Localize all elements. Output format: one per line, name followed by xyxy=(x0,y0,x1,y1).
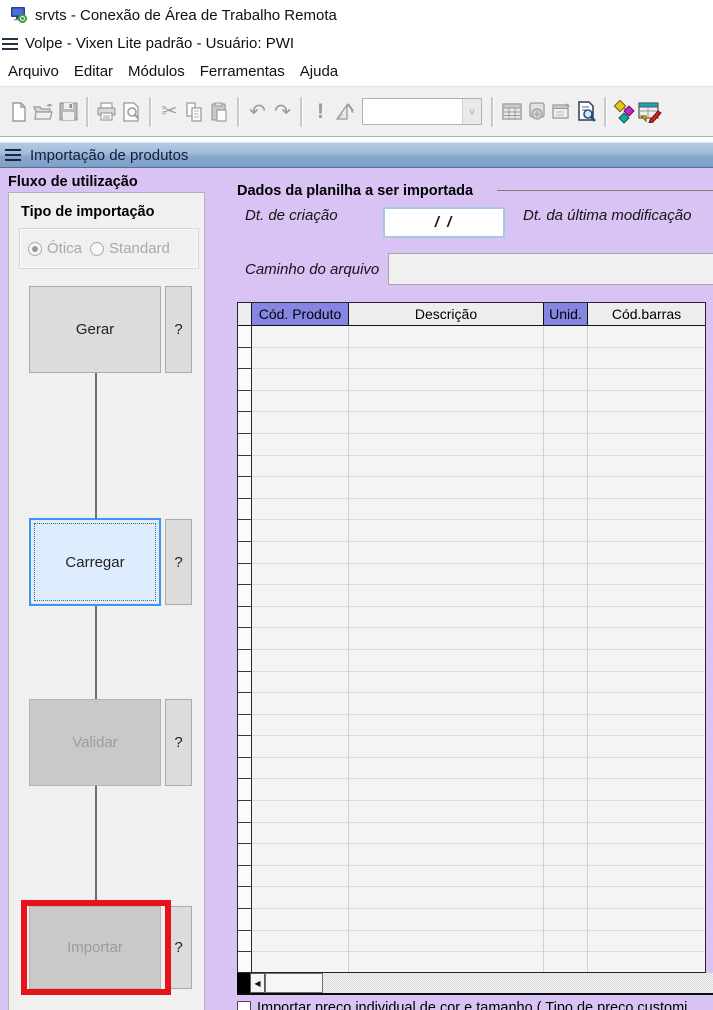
cell-unid[interactable] xyxy=(544,758,588,780)
cell-descricao[interactable] xyxy=(349,628,544,650)
table-row[interactable] xyxy=(238,564,705,586)
cell-descricao[interactable] xyxy=(349,369,544,391)
row-selector-cell[interactable] xyxy=(238,693,252,715)
import-price-checkbox[interactable] xyxy=(237,1001,251,1010)
cell-cod-barras[interactable] xyxy=(588,326,705,348)
print-icon[interactable] xyxy=(94,99,119,125)
paste-icon[interactable] xyxy=(207,99,232,125)
file-path-label: Caminho do arquivo xyxy=(245,261,379,278)
execute-icon[interactable]: ! xyxy=(308,99,333,125)
table-row[interactable] xyxy=(238,520,705,542)
cell-descricao[interactable] xyxy=(349,434,544,456)
cell-cod-produto[interactable] xyxy=(252,499,349,521)
table-row[interactable] xyxy=(238,823,705,845)
cell-descricao[interactable] xyxy=(349,844,544,866)
row-selector-cell[interactable] xyxy=(238,391,252,413)
cell-cod-barras[interactable] xyxy=(588,693,705,715)
grid-view-icon[interactable] xyxy=(499,99,524,125)
table-row[interactable] xyxy=(238,477,705,499)
cell-unid[interactable] xyxy=(544,844,588,866)
cell-cod-produto[interactable] xyxy=(252,801,349,823)
carregar-help-button[interactable]: ? xyxy=(165,519,192,605)
cell-cod-produto[interactable] xyxy=(252,844,349,866)
row-selector-cell[interactable] xyxy=(238,866,252,888)
cell-cod-barras[interactable] xyxy=(588,477,705,499)
cell-cod-produto[interactable] xyxy=(252,434,349,456)
table-body xyxy=(238,326,705,973)
table-row[interactable] xyxy=(238,650,705,672)
table-row[interactable] xyxy=(238,412,705,434)
cell-unid[interactable] xyxy=(544,369,588,391)
row-selector-cell[interactable] xyxy=(238,456,252,478)
radio-circle-icon xyxy=(28,242,42,256)
scrollbar-corner xyxy=(237,973,250,993)
row-selector-cell[interactable] xyxy=(238,758,252,780)
carregar-button[interactable]: Carregar xyxy=(29,518,161,606)
scroll-left-button[interactable]: ◀ xyxy=(250,973,265,993)
toolbar-combobox[interactable]: ∨ xyxy=(362,98,482,125)
cell-unid[interactable] xyxy=(544,326,588,348)
table-row[interactable] xyxy=(238,456,705,478)
cell-cod-barras[interactable] xyxy=(588,823,705,845)
table-row[interactable] xyxy=(238,434,705,456)
table-row[interactable] xyxy=(238,542,705,564)
cell-cod-barras[interactable] xyxy=(588,736,705,758)
cell-cod-produto[interactable] xyxy=(252,736,349,758)
cell-unid[interactable] xyxy=(544,672,588,694)
cell-unid[interactable] xyxy=(544,477,588,499)
row-selector-cell[interactable] xyxy=(238,477,252,499)
window-title: Importação de produtos xyxy=(30,147,188,164)
cell-unid[interactable] xyxy=(544,693,588,715)
remote-desktop-icon xyxy=(10,6,28,24)
row-selector-header xyxy=(238,303,252,325)
cell-descricao[interactable] xyxy=(349,779,544,801)
cell-cod-produto[interactable] xyxy=(252,348,349,370)
creation-date-label: Dt. de criação xyxy=(245,207,338,224)
cell-cod-produto[interactable] xyxy=(252,456,349,478)
table-row[interactable] xyxy=(238,715,705,737)
menu-ferramentas[interactable]: Ferramentas xyxy=(200,63,285,80)
menu-ajuda[interactable]: Ajuda xyxy=(300,63,338,80)
cell-descricao[interactable] xyxy=(349,887,544,909)
cell-unid[interactable] xyxy=(544,650,588,672)
cell-unid[interactable] xyxy=(544,801,588,823)
cell-cod-produto[interactable] xyxy=(252,520,349,542)
cell-cod-produto[interactable] xyxy=(252,477,349,499)
cell-descricao[interactable] xyxy=(349,952,544,973)
row-selector-cell[interactable] xyxy=(238,672,252,694)
cell-descricao[interactable] xyxy=(349,866,544,888)
sort-flow-icon[interactable] xyxy=(612,99,637,125)
cell-descricao[interactable] xyxy=(349,520,544,542)
cell-descricao[interactable] xyxy=(349,564,544,586)
row-selector-cell[interactable] xyxy=(238,348,252,370)
cell-cod-produto[interactable] xyxy=(252,931,349,953)
flow-connector xyxy=(95,373,97,520)
grid-edit-icon[interactable] xyxy=(637,99,662,125)
divider xyxy=(237,993,713,995)
design-ruler-icon[interactable] xyxy=(333,99,358,125)
row-selector-cell[interactable] xyxy=(238,369,252,391)
cell-descricao[interactable] xyxy=(349,499,544,521)
table-row[interactable] xyxy=(238,693,705,715)
cell-cod-barras[interactable] xyxy=(588,369,705,391)
toolbar-separator xyxy=(604,97,607,127)
radio-standard[interactable]: Standard xyxy=(90,240,170,257)
cell-cod-produto[interactable] xyxy=(252,779,349,801)
cell-unid[interactable] xyxy=(544,434,588,456)
row-selector-cell[interactable] xyxy=(238,542,252,564)
row-selector-cell[interactable] xyxy=(238,952,252,973)
redo-icon[interactable]: ↷ xyxy=(270,99,295,125)
gerar-help-button[interactable]: ? xyxy=(165,286,192,373)
row-selector-cell[interactable] xyxy=(238,931,252,953)
cell-cod-barras[interactable] xyxy=(588,499,705,521)
cell-unid[interactable] xyxy=(544,952,588,973)
cell-cod-barras[interactable] xyxy=(588,412,705,434)
table-row[interactable] xyxy=(238,585,705,607)
radio-otica[interactable]: Ótica xyxy=(28,240,82,257)
cell-unid[interactable] xyxy=(544,391,588,413)
cell-cod-produto[interactable] xyxy=(252,887,349,909)
cell-unid[interactable] xyxy=(544,736,588,758)
validar-help-button[interactable]: ? xyxy=(165,699,192,786)
calculator-icon[interactable] xyxy=(524,99,549,125)
table-row[interactable] xyxy=(238,909,705,931)
menubar: Arquivo Editar Módulos Ferramentas Ajuda xyxy=(0,57,713,86)
row-selector-cell[interactable] xyxy=(238,585,252,607)
cell-cod-produto[interactable] xyxy=(252,672,349,694)
import-price-row: Importar preço individual de cor e taman… xyxy=(237,998,713,1010)
table-row[interactable] xyxy=(238,348,705,370)
row-selector-cell[interactable] xyxy=(238,823,252,845)
table-row[interactable] xyxy=(238,887,705,909)
cell-cod-produto[interactable] xyxy=(252,412,349,434)
table-row[interactable] xyxy=(238,391,705,413)
undo-icon[interactable]: ↶ xyxy=(245,99,270,125)
cell-descricao[interactable] xyxy=(349,736,544,758)
row-selector-cell[interactable] xyxy=(238,779,252,801)
chevron-down-icon: ∨ xyxy=(462,99,481,124)
cell-cod-produto[interactable] xyxy=(252,542,349,564)
validar-button[interactable]: Validar xyxy=(29,699,161,786)
cell-cod-barras[interactable] xyxy=(588,866,705,888)
cell-cod-produto[interactable] xyxy=(252,715,349,737)
cell-cod-barras[interactable] xyxy=(588,607,705,629)
importar-help-button[interactable]: ? xyxy=(165,906,192,989)
menu-modulos[interactable]: Módulos xyxy=(128,63,185,80)
cell-cod-barras[interactable] xyxy=(588,650,705,672)
import-products-content: Fluxo de utilização Dados da planilha a … xyxy=(0,168,713,1010)
cell-descricao[interactable] xyxy=(349,542,544,564)
cell-cod-produto[interactable] xyxy=(252,391,349,413)
cell-cod-produto[interactable] xyxy=(252,585,349,607)
cell-cod-barras[interactable] xyxy=(588,715,705,737)
cell-unid[interactable] xyxy=(544,909,588,931)
cell-descricao[interactable] xyxy=(349,650,544,672)
cell-cod-barras[interactable] xyxy=(588,456,705,478)
horizontal-scrollbar[interactable]: ◀ xyxy=(237,973,713,993)
products-table: Cód. Produto Descrição Unid. Cód.barras xyxy=(237,302,706,973)
file-path-input[interactable] xyxy=(388,253,713,285)
table-row[interactable] xyxy=(238,672,705,694)
cell-cod-produto[interactable] xyxy=(252,326,349,348)
rdp-title-bar: srvts - Conexão de Área de Trabalho Remo… xyxy=(0,0,713,30)
row-selector-cell[interactable] xyxy=(238,520,252,542)
open-folder-icon[interactable] xyxy=(31,99,56,125)
cell-descricao[interactable] xyxy=(349,585,544,607)
cell-descricao[interactable] xyxy=(349,672,544,694)
cell-unid[interactable] xyxy=(544,866,588,888)
menu-arquivo[interactable]: Arquivo xyxy=(8,63,59,80)
table-row[interactable] xyxy=(238,628,705,650)
row-selector-cell[interactable] xyxy=(238,887,252,909)
cell-unid[interactable] xyxy=(544,520,588,542)
window-title-bar: Importação de produtos xyxy=(0,142,713,168)
row-selector-cell[interactable] xyxy=(238,607,252,629)
cell-unid[interactable] xyxy=(544,542,588,564)
row-selector-cell[interactable] xyxy=(238,909,252,931)
cell-unid[interactable] xyxy=(544,348,588,370)
menu-editar[interactable]: Editar xyxy=(74,63,113,80)
cell-unid[interactable] xyxy=(544,564,588,586)
cell-cod-produto[interactable] xyxy=(252,607,349,629)
cell-cod-barras[interactable] xyxy=(588,801,705,823)
cell-descricao[interactable] xyxy=(349,909,544,931)
remote-desktop-screen: srvts - Conexão de Área de Trabalho Remo… xyxy=(0,0,713,1010)
hamburger-icon[interactable] xyxy=(2,38,18,50)
row-selector-cell[interactable] xyxy=(238,650,252,672)
properties-icon[interactable] xyxy=(549,99,574,125)
toolbar-separator xyxy=(300,97,303,127)
save-icon[interactable] xyxy=(56,99,81,125)
cell-cod-barras[interactable] xyxy=(588,844,705,866)
flow-connector xyxy=(95,786,97,906)
cell-descricao[interactable] xyxy=(349,326,544,348)
hamburger-icon[interactable] xyxy=(5,149,21,161)
cell-cod-barras[interactable] xyxy=(588,564,705,586)
cell-cod-produto[interactable] xyxy=(252,952,349,973)
col-header-cod-barras[interactable]: Cód.barras xyxy=(588,303,705,325)
flow-panel: Tipo de importação Ótica Standard Gerar … xyxy=(8,192,205,1010)
row-selector-cell[interactable] xyxy=(238,628,252,650)
cell-cod-barras[interactable] xyxy=(588,520,705,542)
cell-unid[interactable] xyxy=(544,499,588,521)
row-selector-cell[interactable] xyxy=(238,326,252,348)
row-selector-cell[interactable] xyxy=(238,499,252,521)
row-selector-cell[interactable] xyxy=(238,434,252,456)
cell-descricao[interactable] xyxy=(349,801,544,823)
cell-cod-produto[interactable] xyxy=(252,650,349,672)
toolbar-separator xyxy=(237,97,240,127)
flow-group-caption: Fluxo de utilização xyxy=(8,174,138,190)
creation-date-input[interactable]: / / xyxy=(383,207,505,238)
cell-descricao[interactable] xyxy=(349,823,544,845)
cell-unid[interactable] xyxy=(544,887,588,909)
cell-cod-barras[interactable] xyxy=(588,391,705,413)
cell-unid[interactable] xyxy=(544,715,588,737)
group-caption-line xyxy=(497,190,713,191)
table-row[interactable] xyxy=(238,866,705,888)
cell-cod-barras[interactable] xyxy=(588,542,705,564)
cell-descricao[interactable] xyxy=(349,715,544,737)
row-selector-cell[interactable] xyxy=(238,736,252,758)
table-row[interactable] xyxy=(238,952,705,973)
copy-icon[interactable] xyxy=(182,99,207,125)
cell-cod-produto[interactable] xyxy=(252,564,349,586)
cell-cod-barras[interactable] xyxy=(588,348,705,370)
row-selector-cell[interactable] xyxy=(238,564,252,586)
cell-cod-barras[interactable] xyxy=(588,585,705,607)
combobox-value xyxy=(363,99,462,124)
new-document-icon[interactable] xyxy=(6,99,31,125)
cell-descricao[interactable] xyxy=(349,391,544,413)
cell-descricao[interactable] xyxy=(349,412,544,434)
cell-descricao[interactable] xyxy=(349,477,544,499)
row-selector-cell[interactable] xyxy=(238,715,252,737)
import-type-title: Tipo de importação xyxy=(21,204,154,220)
cell-cod-produto[interactable] xyxy=(252,823,349,845)
app-title: Volpe - Vixen Lite padrão - Usuário: PWI xyxy=(25,35,294,52)
cut-icon[interactable]: ✂ xyxy=(157,99,182,125)
table-row[interactable] xyxy=(238,779,705,801)
modified-date-label: Dt. da última modificação xyxy=(523,207,691,224)
table-row[interactable] xyxy=(238,931,705,953)
import-type-radiogroup: Ótica Standard xyxy=(19,228,199,269)
cell-cod-barras[interactable] xyxy=(588,628,705,650)
app-title-bar: Volpe - Vixen Lite padrão - Usuário: PWI xyxy=(0,31,713,56)
cell-descricao[interactable] xyxy=(349,348,544,370)
cell-unid[interactable] xyxy=(544,585,588,607)
importar-button[interactable]: Importar xyxy=(29,906,161,989)
row-selector-cell[interactable] xyxy=(238,412,252,434)
cell-cod-produto[interactable] xyxy=(252,909,349,931)
cell-unid[interactable] xyxy=(544,607,588,629)
cell-descricao[interactable] xyxy=(349,693,544,715)
scrollbar-thumb[interactable] xyxy=(265,973,323,993)
cell-cod-barras[interactable] xyxy=(588,434,705,456)
cell-cod-produto[interactable] xyxy=(252,866,349,888)
table-row[interactable] xyxy=(238,369,705,391)
cell-cod-barras[interactable] xyxy=(588,672,705,694)
cell-cod-barras[interactable] xyxy=(588,931,705,953)
flow-connector xyxy=(95,606,97,699)
table-row[interactable] xyxy=(238,499,705,521)
cell-cod-barras[interactable] xyxy=(588,909,705,931)
cell-unid[interactable] xyxy=(544,823,588,845)
toolbar-separator xyxy=(86,97,89,127)
cell-cod-barras[interactable] xyxy=(588,887,705,909)
gerar-button[interactable]: Gerar xyxy=(29,286,161,373)
cell-unid[interactable] xyxy=(544,456,588,478)
table-row[interactable] xyxy=(238,607,705,629)
cell-unid[interactable] xyxy=(544,931,588,953)
cell-cod-produto[interactable] xyxy=(252,628,349,650)
table-row[interactable] xyxy=(238,758,705,780)
cell-unid[interactable] xyxy=(544,628,588,650)
cell-descricao[interactable] xyxy=(349,931,544,953)
print-preview-icon[interactable] xyxy=(119,99,144,125)
cell-cod-produto[interactable] xyxy=(252,693,349,715)
table-row[interactable] xyxy=(238,801,705,823)
table-row[interactable] xyxy=(238,736,705,758)
col-header-cod-produto[interactable]: Cód. Produto xyxy=(252,303,349,325)
cell-unid[interactable] xyxy=(544,779,588,801)
table-row[interactable] xyxy=(238,844,705,866)
cell-cod-produto[interactable] xyxy=(252,758,349,780)
rdp-title: srvts - Conexão de Área de Trabalho Remo… xyxy=(35,7,337,24)
cell-descricao[interactable] xyxy=(349,607,544,629)
toolbar-separator xyxy=(491,97,494,127)
cell-cod-barras[interactable] xyxy=(588,779,705,801)
cell-descricao[interactable] xyxy=(349,758,544,780)
toolbar: ✂ ↶ ↷ ! ∨ xyxy=(0,86,713,137)
toolbar-separator xyxy=(149,97,152,127)
cell-descricao[interactable] xyxy=(349,456,544,478)
sheet-group-caption: Dados da planilha a ser importada xyxy=(237,183,473,199)
cell-cod-produto[interactable] xyxy=(252,369,349,391)
cell-cod-barras[interactable] xyxy=(588,758,705,780)
table-header-row: Cód. Produto Descrição Unid. Cód.barras xyxy=(238,303,705,326)
search-document-icon[interactable] xyxy=(574,99,599,125)
row-selector-cell[interactable] xyxy=(238,801,252,823)
table-row[interactable] xyxy=(238,326,705,348)
cell-cod-barras[interactable] xyxy=(588,952,705,973)
col-header-unid[interactable]: Unid. xyxy=(544,303,588,325)
radio-circle-icon xyxy=(90,242,104,256)
row-selector-cell[interactable] xyxy=(238,844,252,866)
import-price-label: Importar preço individual de cor e taman… xyxy=(257,1000,687,1010)
col-header-descricao[interactable]: Descrição xyxy=(349,303,544,325)
cell-unid[interactable] xyxy=(544,412,588,434)
